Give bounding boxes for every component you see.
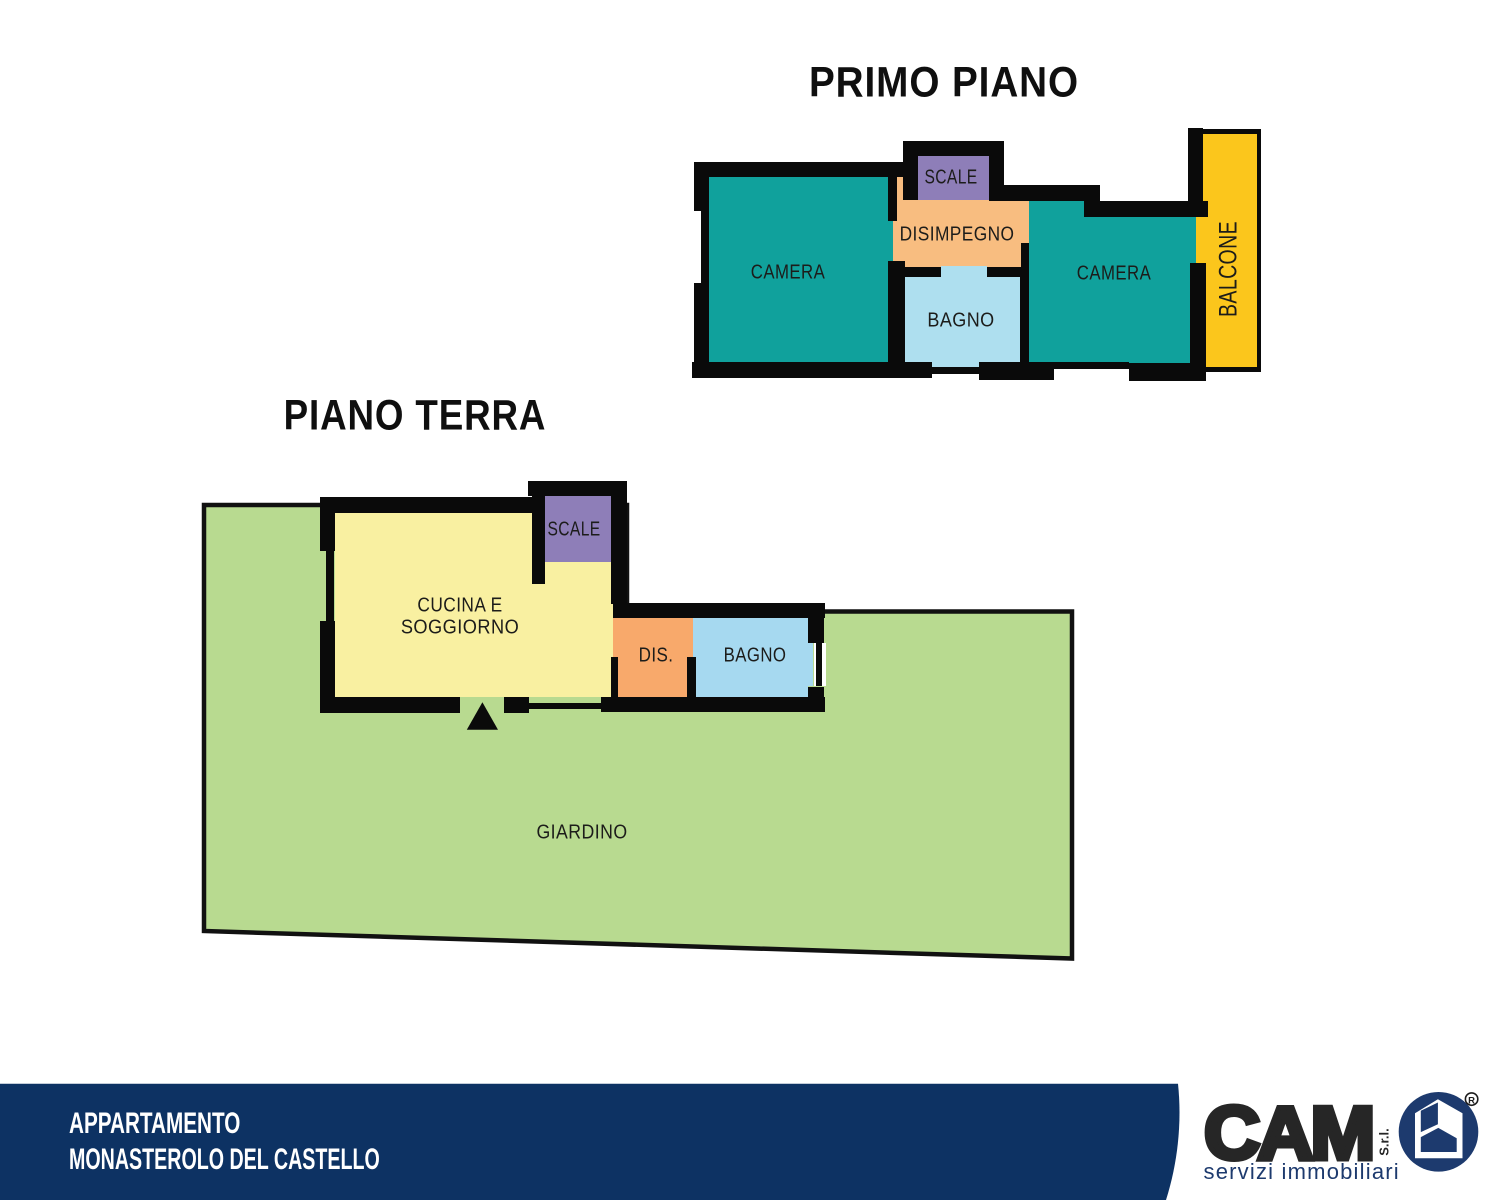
svg-text:R: R [1468,1095,1475,1106]
